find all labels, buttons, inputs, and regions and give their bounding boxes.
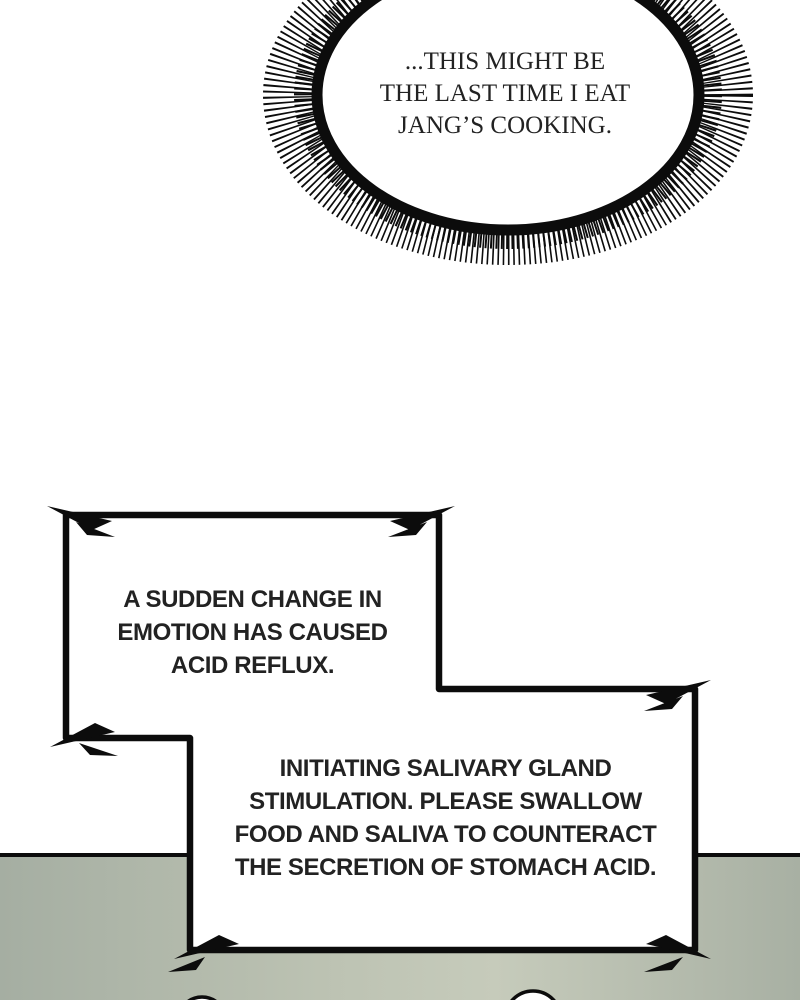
thought-bubble-text: ...THIS MIGHT BE THE LAST TIME I EAT JAN… xyxy=(355,46,655,142)
system-message-1-text: A SUDDEN CHANGE IN EMOTION HAS CAUSED AC… xyxy=(95,583,410,682)
comic-panel: ...THIS MIGHT BE THE LAST TIME I EAT JAN… xyxy=(0,0,800,1000)
system-message-2-text: INITIATING SALIVARY GLAND STIMULATION. P… xyxy=(213,752,678,884)
